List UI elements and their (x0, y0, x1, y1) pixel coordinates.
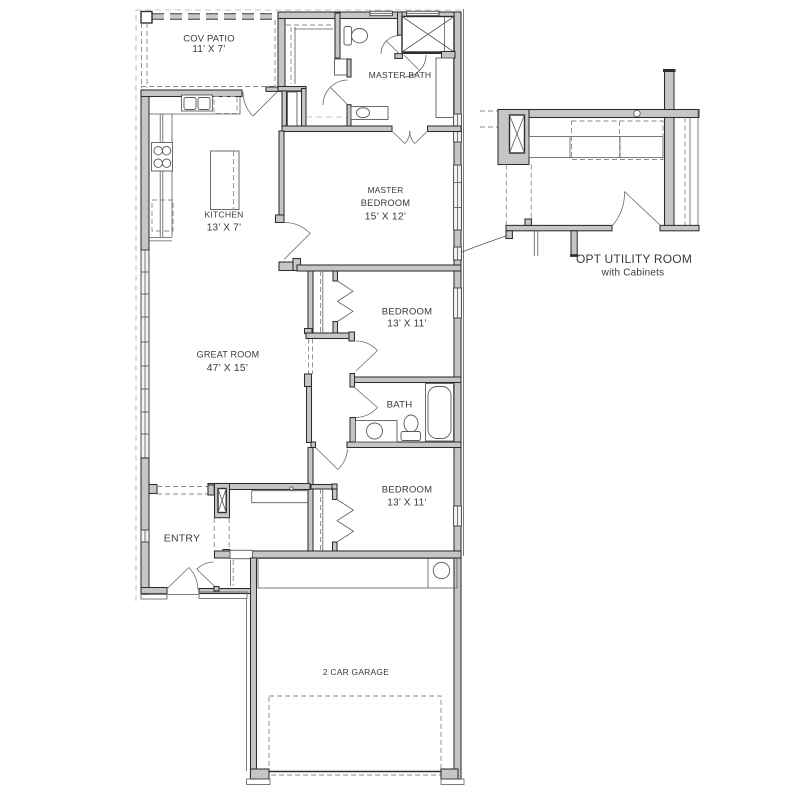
svg-text:GREAT ROOM: GREAT ROOM (197, 349, 260, 359)
svg-text:13’ X 7’: 13’ X 7’ (207, 223, 242, 234)
svg-text:BEDROOM: BEDROOM (382, 485, 433, 496)
svg-text:MASTER: MASTER (368, 185, 404, 195)
svg-text:2 CAR GARAGE: 2 CAR GARAGE (323, 667, 389, 677)
svg-text:OPT UTILITY ROOM: OPT UTILITY ROOM (576, 252, 692, 266)
svg-text:15’ X 12’: 15’ X 12’ (365, 212, 407, 223)
svg-text:47’ X 15’: 47’ X 15’ (207, 363, 249, 374)
svg-text:BEDROOM: BEDROOM (382, 307, 433, 318)
svg-text:MASTER BATH: MASTER BATH (369, 70, 432, 80)
svg-text:13’ X 11’: 13’ X 11’ (387, 498, 427, 509)
svg-text:KITCHEN: KITCHEN (204, 210, 243, 220)
svg-text:BEDROOM: BEDROOM (361, 198, 410, 208)
svg-text:11’ X 7’: 11’ X 7’ (192, 44, 225, 55)
svg-text:COV PATIO: COV PATIO (183, 32, 234, 43)
svg-text:with Cabinets: with Cabinets (601, 268, 665, 279)
svg-text:ENTRY: ENTRY (164, 532, 200, 544)
svg-text:BATH: BATH (387, 400, 413, 411)
svg-text:13’ X 11’: 13’ X 11’ (387, 318, 427, 329)
